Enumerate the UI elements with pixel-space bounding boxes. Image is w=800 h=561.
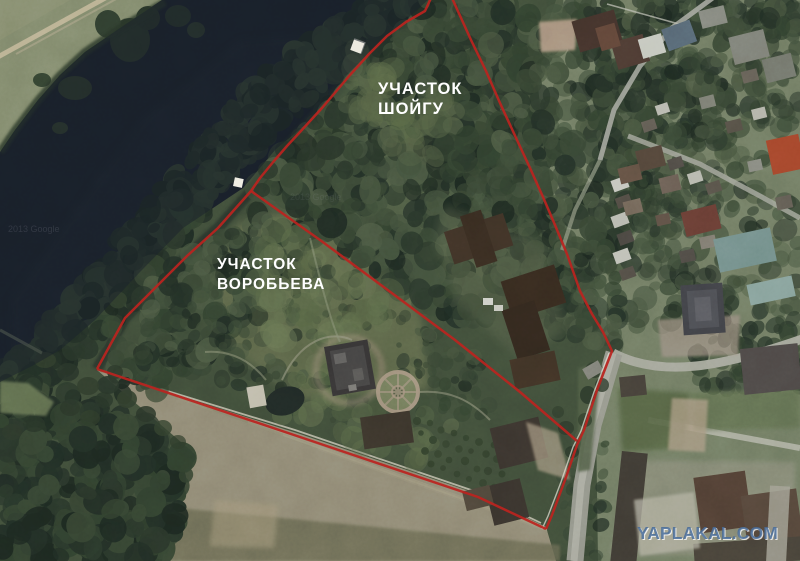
svg-text:2013 Google: 2013 Google (290, 192, 342, 202)
svg-text:УЧАСТОК: УЧАСТОК (378, 80, 462, 98)
svg-text:УЧАСТОК: УЧАСТОК (217, 256, 297, 273)
svg-text:ШОЙГУ: ШОЙГУ (378, 99, 444, 118)
svg-text:ВОРОБЬЕВА: ВОРОБЬЕВА (217, 276, 325, 293)
svg-text:2013 Google: 2013 Google (8, 224, 60, 234)
svg-text:YAPLAKAL.COM: YAPLAKAL.COM (637, 523, 778, 543)
